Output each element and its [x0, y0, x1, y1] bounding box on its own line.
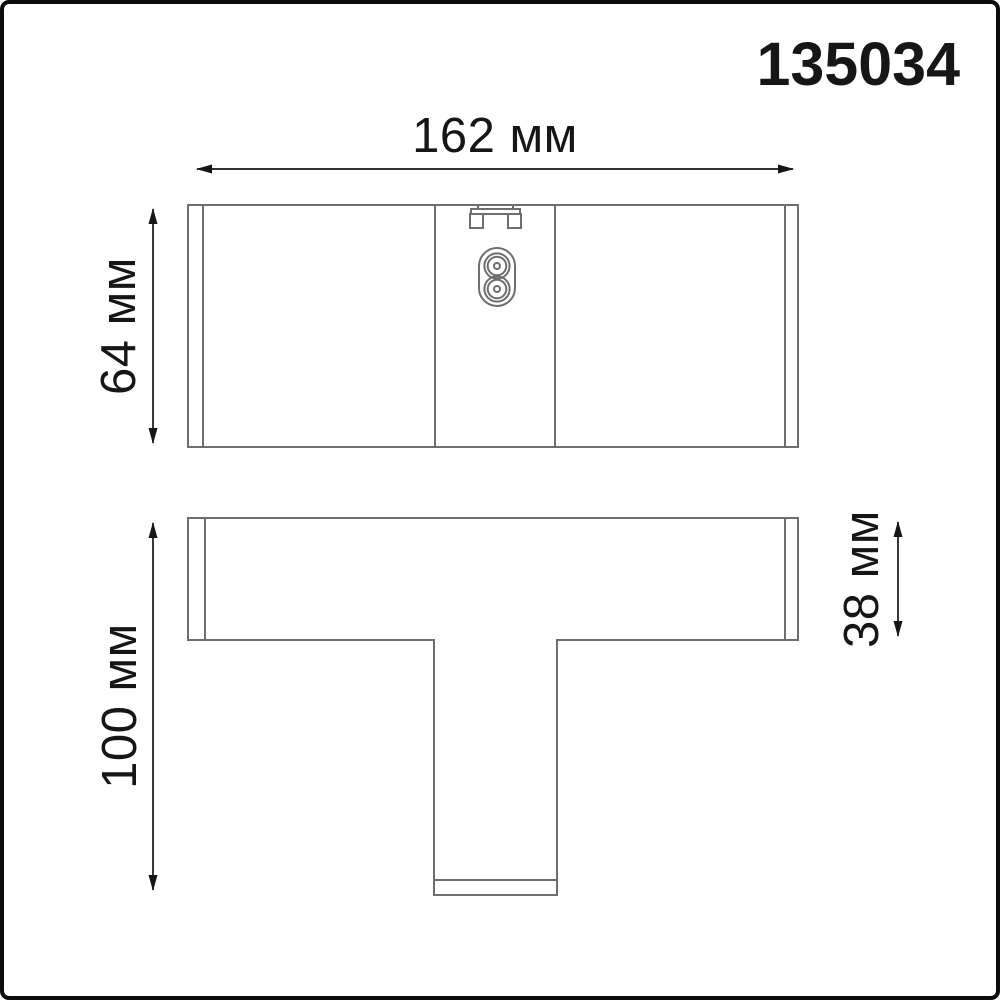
- bottom-view-outline: [188, 518, 798, 895]
- figure8-power-connector-icon: [479, 248, 515, 306]
- mounting-clip-icon: [470, 205, 521, 228]
- top-view-outline: [188, 205, 798, 447]
- dimension-label-bar: 38 мм: [835, 510, 889, 648]
- dimension-label-width: 162 мм: [412, 109, 578, 163]
- technical-drawing: 162 мм 64 мм 100 мм 38 мм 135034: [0, 0, 1000, 1000]
- article-number: 135034: [756, 30, 960, 98]
- bottom-view: [188, 518, 798, 895]
- dimension-label-depth: 100 мм: [93, 623, 147, 789]
- dimension-label-height: 64 мм: [92, 257, 146, 395]
- dimension-lines: [153, 169, 898, 890]
- top-view: [188, 205, 798, 447]
- drawing-canvas: 162 мм 64 мм 100 мм 38 мм 135034: [0, 0, 1000, 1000]
